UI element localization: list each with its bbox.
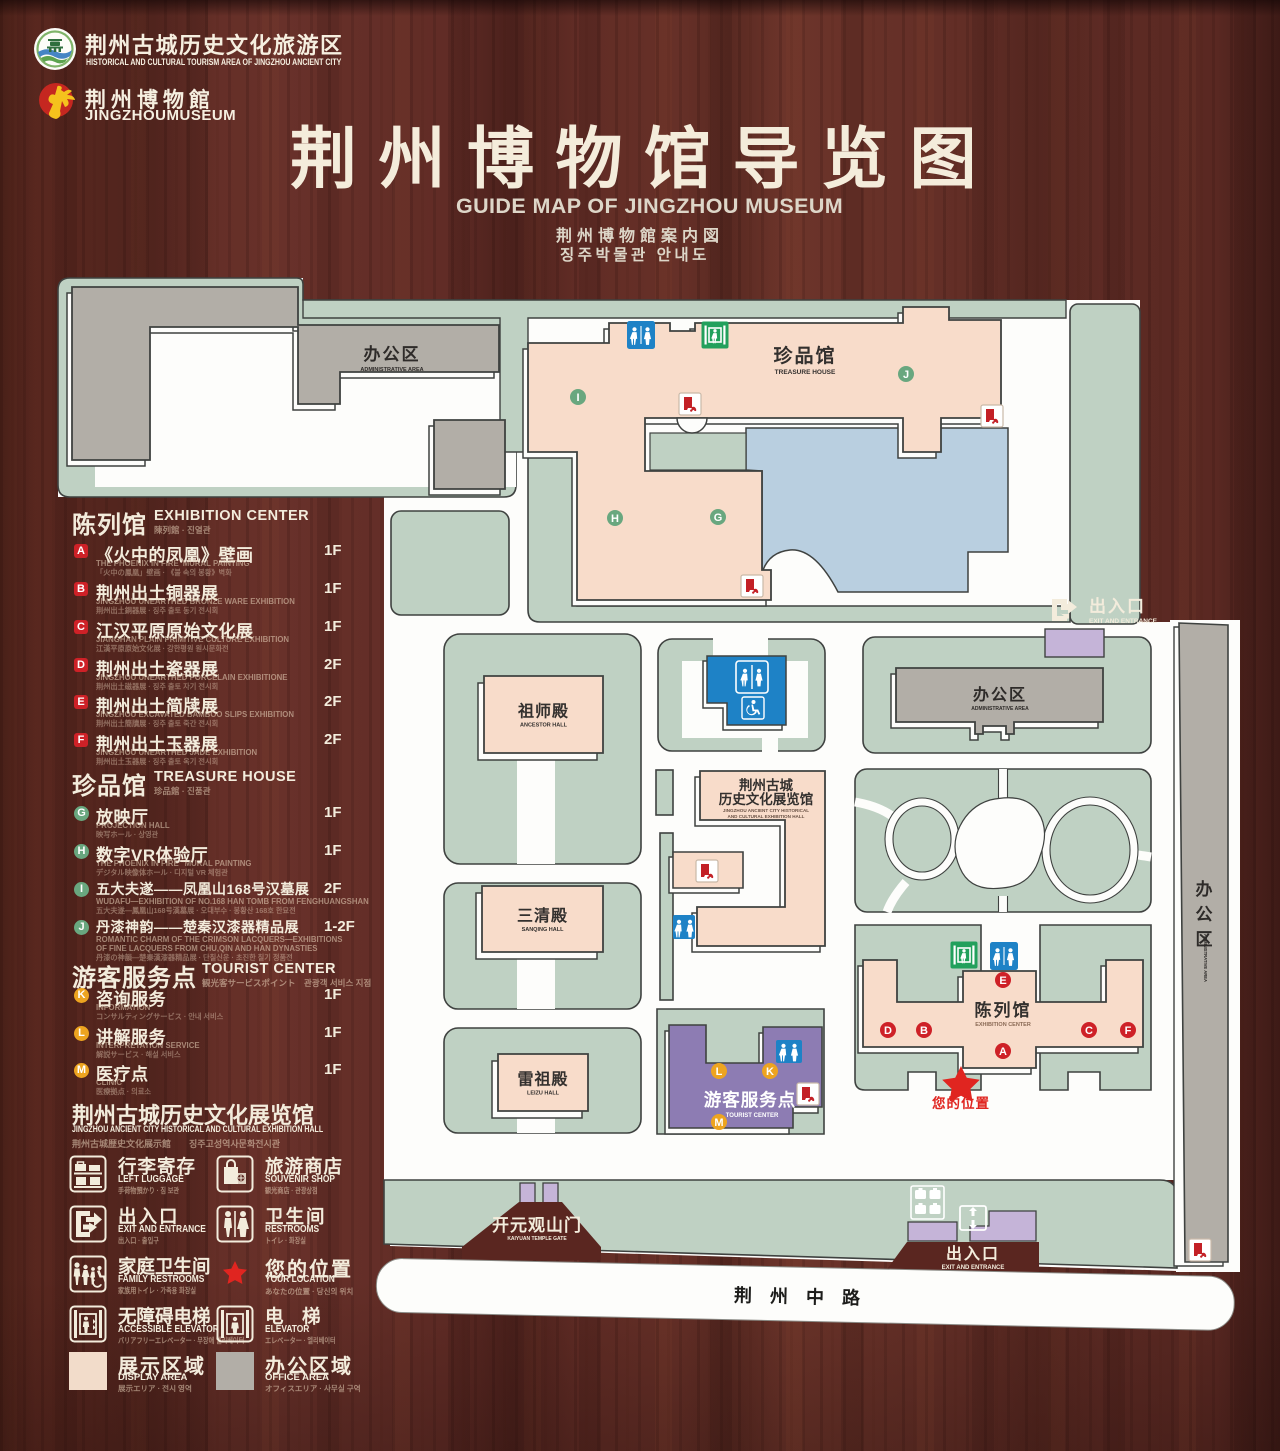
svg-text:荆州中路: 荆州中路 [734,1284,878,1308]
svg-text:AND CULTURAL EXHIBITION HALL: AND CULTURAL EXHIBITION HALL [728,814,805,819]
svg-text:ADMINISTRATIVE AREA: ADMINISTRATIVE AREA [971,706,1029,712]
svg-text:出入口: 出入口 [1089,596,1146,616]
svg-text:SANQING HALL: SANQING HALL [522,927,565,933]
svg-text:F: F [1125,1025,1132,1037]
svg-text:K: K [766,1066,774,1078]
svg-text:公: 公 [1196,905,1213,924]
svg-text:办公区: 办公区 [364,344,421,364]
svg-text:D: D [884,1025,892,1037]
svg-text:历史文化展览馆: 历史文化展览馆 [719,791,814,807]
svg-text:荆州古城: 荆州古城 [739,777,793,793]
svg-text:开元观山门: 开元观山门 [492,1215,582,1235]
svg-text:JINGZHOU ANCIENT CITY HISTORIC: JINGZHOU ANCIENT CITY HISTORICAL [723,808,809,813]
svg-text:J: J [903,369,909,381]
svg-text:出入口: 出入口 [946,1244,1000,1263]
svg-text:三清殿: 三清殿 [517,907,568,925]
svg-text:C: C [1085,1025,1093,1037]
svg-text:办: 办 [1196,879,1213,899]
svg-text:TREASURE HOUSE: TREASURE HOUSE [775,369,836,376]
svg-text:KAIYUAN TEMPLE GATE: KAIYUAN TEMPLE GATE [507,1236,567,1242]
svg-text:M: M [714,1117,723,1129]
svg-text:A: A [999,1046,1007,1058]
svg-text:ANCESTOR HALL: ANCESTOR HALL [520,723,568,729]
svg-text:陈列馆: 陈列馆 [975,1000,1032,1020]
svg-text:ADMINISTRATIVE AREA: ADMINISTRATIVE AREA [360,367,423,373]
svg-text:游客服务点: 游客服务点 [704,1090,797,1110]
svg-text:办公区: 办公区 [973,685,1027,704]
svg-text:EXIT AND ENTRANCE: EXIT AND ENTRANCE [1089,618,1158,625]
svg-text:祖师殿: 祖师殿 [517,702,569,721]
svg-text:雷祖殿: 雷祖殿 [517,1070,568,1089]
svg-text:G: G [714,512,723,524]
svg-text:珍品馆: 珍品馆 [773,344,836,367]
svg-text:B: B [920,1025,928,1037]
svg-text:I: I [576,392,579,404]
svg-text:E: E [999,975,1006,987]
svg-text:LEIZU HALL: LEIZU HALL [527,1091,560,1097]
svg-text:ADMINISTRATIVE AREA: ADMINISTRATIVE AREA [1203,934,1208,982]
svg-text:L: L [716,1066,723,1078]
svg-text:您的位置: 您的位置 [932,1095,990,1111]
svg-text:EXIT AND ENTRANCE: EXIT AND ENTRANCE [942,1265,1005,1271]
svg-text:H: H [611,513,619,525]
svg-text:EXHIBITION CENTER: EXHIBITION CENTER [975,1022,1031,1028]
svg-text:TOURIST CENTER: TOURIST CENTER [726,1113,779,1119]
